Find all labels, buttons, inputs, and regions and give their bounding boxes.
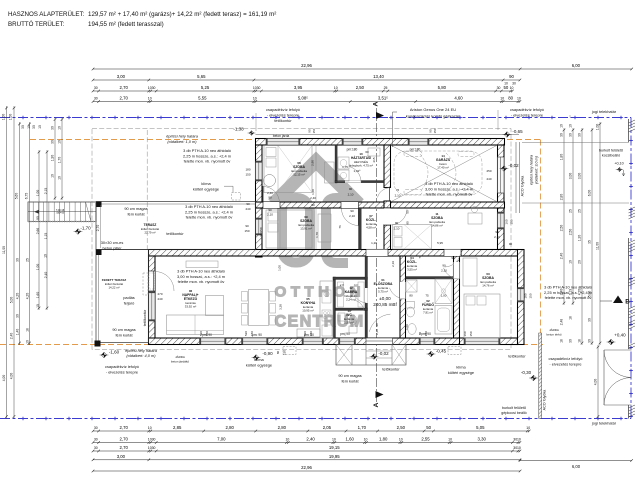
svg-text:80: 80 — [508, 96, 513, 101]
svg-text:-0,45: -0,45 — [436, 349, 447, 354]
svg-text:építési hely határa: építési hely határa — [166, 134, 199, 139]
svg-text:-0,02: -0,02 — [508, 163, 519, 168]
svg-text:10: 10 — [500, 97, 504, 101]
svg-text:4,20: 4,20 — [26, 293, 30, 300]
svg-text:2,80: 2,80 — [560, 194, 564, 201]
svg-text:90 cm magas: 90 cm magas — [124, 206, 147, 211]
svg-text:1,90: 1,90 — [51, 155, 55, 162]
svg-text:76: 76 — [396, 188, 400, 192]
svg-text:25: 25 — [578, 209, 582, 213]
svg-text:30: 30 — [94, 446, 98, 450]
svg-text:1,92⁵: 1,92⁵ — [353, 169, 361, 173]
svg-text:1,00: 1,00 — [278, 265, 282, 271]
svg-text:80: 80 — [409, 294, 413, 298]
svg-text:2,24 m²: 2,24 m² — [346, 298, 356, 302]
svg-text:4,00: 4,00 — [10, 373, 14, 380]
svg-text:2,10: 2,10 — [394, 226, 400, 230]
svg-text:5,80: 5,80 — [438, 85, 447, 90]
svg-text:30: 30 — [497, 86, 501, 90]
svg-text:240,85 mBf: 240,85 mBf — [373, 302, 397, 307]
svg-text:4,00: 4,00 — [594, 379, 598, 386]
svg-text:150: 150 — [250, 331, 254, 336]
svg-text:90: 90 — [509, 242, 513, 246]
svg-text:2,15: 2,15 — [44, 188, 48, 195]
svg-text:2,50: 2,50 — [356, 85, 365, 90]
svg-text:csapadékvíz lefolyó: csapadékvíz lefolyó — [105, 364, 139, 369]
svg-text:10: 10 — [26, 340, 30, 344]
svg-text:180: 180 — [524, 293, 528, 298]
svg-text:-1,60: -1,60 — [109, 350, 120, 355]
svg-text:30: 30 — [16, 258, 20, 262]
svg-text:2,10: 2,10 — [395, 194, 401, 198]
svg-text:14,86 m²: 14,86 m² — [431, 224, 442, 228]
svg-text:20: 20 — [578, 260, 582, 264]
svg-text:10: 10 — [332, 438, 336, 442]
svg-text:30×30 cm-es: 30×30 cm-es — [101, 240, 124, 245]
svg-text:1,60: 1,60 — [36, 292, 40, 299]
svg-text:fém korlát: fém korlát — [127, 211, 145, 216]
svg-text:180: 180 — [245, 168, 250, 172]
svg-text:B: B — [625, 299, 630, 306]
svg-text:90: 90 — [349, 187, 353, 191]
svg-text:2,40: 2,40 — [306, 437, 315, 442]
svg-text:10: 10 — [44, 254, 48, 258]
svg-text:2,90: 2,90 — [311, 160, 315, 166]
svg-text:tetőkontúr: tetőkontúr — [382, 367, 400, 372]
svg-text:(oldalkert: 1,0 m): (oldalkert: 1,0 m) — [167, 139, 197, 144]
svg-text:ACO folyóka: ACO folyóka — [543, 389, 547, 411]
svg-text:1,60: 1,60 — [346, 437, 355, 442]
svg-text:520: 520 — [244, 331, 248, 336]
svg-text:50: 50 — [504, 85, 509, 90]
svg-text:19,95: 19,95 — [329, 454, 340, 459]
svg-text:150: 150 — [433, 128, 437, 133]
svg-text:14,22 m²: 14,22 m² — [108, 286, 119, 290]
svg-text:BRUTTÓ TERÜLET:: BRUTTÓ TERÜLET: — [8, 21, 65, 28]
svg-text:10: 10 — [526, 426, 530, 430]
svg-text:33,92 m²: 33,92 m² — [185, 304, 196, 308]
svg-text:150: 150 — [312, 128, 316, 133]
svg-text:2,10: 2,10 — [348, 193, 354, 197]
svg-text:30: 30 — [560, 133, 564, 137]
svg-text:+0,40: +0,40 — [614, 333, 626, 338]
svg-text:14,76 m²: 14,76 m² — [482, 284, 493, 288]
svg-text:160: 160 — [505, 219, 509, 224]
svg-text:80: 80 — [418, 332, 422, 336]
svg-text:10: 10 — [569, 124, 573, 128]
svg-text:90: 90 — [429, 129, 433, 133]
svg-text:tetőkontúr: tetőkontúr — [508, 354, 526, 359]
svg-text:beton pillér: beton pillér — [102, 245, 122, 250]
svg-text:- elvezetés terepre: - elvezetés terepre — [106, 369, 138, 374]
svg-text:JÁRDA: JÁRDA — [549, 328, 559, 332]
svg-text:90: 90 — [246, 202, 250, 206]
svg-text:18: 18 — [569, 316, 573, 320]
svg-text:90: 90 — [406, 221, 410, 225]
svg-text:3,55 m²: 3,55 m² — [407, 268, 417, 272]
svg-text:6,00: 6,00 — [588, 190, 592, 197]
svg-text:160: 160 — [463, 331, 467, 336]
svg-text:3,00 m hosszú, a.s.: +2,4 m: 3,00 m hosszú, a.s.: +2,4 m — [425, 186, 473, 191]
svg-text:150: 150 — [424, 331, 428, 336]
svg-text:1,00: 1,00 — [2, 114, 6, 121]
svg-text:2,80: 2,80 — [278, 425, 287, 430]
svg-text:(oldalkert: 3,0 m): (oldalkert: 3,0 m) — [535, 155, 539, 183]
svg-text:2,40: 2,40 — [10, 333, 14, 340]
svg-text:60: 60 — [365, 150, 369, 154]
svg-text:2,50: 2,50 — [560, 225, 564, 232]
svg-text:3,51⁵: 3,51⁵ — [378, 96, 388, 101]
svg-text:felette mon. vb. nyomott öv: felette mon. vb. nyomott öv — [184, 159, 231, 164]
svg-text:30: 30 — [21, 125, 25, 129]
svg-text:194,55 m² (fedett terasszal): 194,55 m² (fedett terasszal) — [88, 21, 164, 28]
svg-text:90|150: 90|150 — [259, 227, 263, 236]
svg-text:kondenzációs kombi gázkazán: kondenzációs kombi gázkazán — [406, 113, 460, 118]
svg-text:felette mon. vb. nyomott öv: felette mon. vb. nyomott öv — [186, 215, 233, 220]
svg-text:30: 30 — [94, 86, 98, 90]
svg-text:76: 76 — [418, 255, 422, 259]
svg-text:10: 10 — [27, 125, 31, 129]
svg-text:1,20: 1,20 — [371, 241, 377, 245]
svg-text:hidegburk. 4,75 m²: hidegburk. 4,75 m² — [349, 164, 373, 168]
svg-text:10: 10 — [36, 304, 40, 308]
svg-text:3,28: 3,28 — [279, 304, 283, 310]
svg-text:19,15: 19,15 — [329, 445, 340, 450]
svg-text:beton térkő: beton térkő — [546, 332, 561, 336]
svg-text:150: 150 — [529, 293, 533, 298]
svg-text:22,96: 22,96 — [301, 63, 312, 68]
svg-text:5,95: 5,95 — [437, 241, 443, 245]
svg-text:4,20: 4,20 — [16, 293, 20, 300]
svg-text:klíma: klíma — [456, 365, 466, 370]
svg-text:2,50: 2,50 — [397, 425, 406, 430]
svg-text:3,00: 3,00 — [578, 173, 582, 180]
svg-text:90: 90 — [245, 224, 249, 228]
svg-text:-0,30: -0,30 — [521, 370, 532, 375]
svg-text:2,70: 2,70 — [120, 425, 129, 430]
svg-text:padlás: padlás — [123, 295, 135, 300]
svg-text:47⁵: 47⁵ — [340, 284, 345, 288]
svg-text:1,70: 1,70 — [315, 232, 319, 238]
svg-text:felette mon. vb. nyomott öv: felette mon. vb. nyomott öv — [178, 279, 225, 284]
svg-text:30: 30 — [94, 426, 98, 430]
svg-text:2,10: 2,10 — [441, 269, 447, 273]
svg-text:240: 240 — [245, 207, 250, 211]
svg-text:10: 10 — [253, 97, 257, 101]
svg-text:35: 35 — [588, 240, 592, 244]
svg-text:kocsibeálló: kocsibeálló — [602, 154, 620, 158]
svg-text:30: 30 — [32, 125, 36, 129]
svg-text:30: 30 — [16, 314, 20, 318]
svg-text:1,80: 1,80 — [560, 154, 564, 161]
svg-text:240: 240 — [157, 297, 162, 301]
svg-text:beton járda: beton járda — [273, 134, 290, 138]
svg-text:5,65: 5,65 — [197, 74, 206, 79]
svg-text:4,58 m²: 4,58 m² — [366, 226, 376, 230]
svg-text:270: 270 — [157, 292, 162, 296]
svg-text:2,70: 2,70 — [96, 225, 100, 232]
svg-text:-1,38: -1,38 — [233, 127, 244, 132]
svg-text:2,66: 2,66 — [36, 228, 40, 235]
svg-text:2,25 m hosszú, a.s.: +2,4 m: 2,25 m hosszú, a.s.: +2,4 m — [185, 209, 233, 214]
svg-text:30: 30 — [152, 438, 156, 442]
svg-text:tetőkontúr: tetőkontúr — [274, 118, 292, 123]
svg-text:3,00: 3,00 — [117, 454, 126, 459]
svg-text:90: 90 — [451, 256, 455, 260]
svg-text:-0,02: -0,02 — [378, 351, 389, 356]
svg-text:ACO folyóka: ACO folyóka — [521, 175, 525, 197]
svg-text:92⁰: 92⁰ — [354, 284, 359, 288]
svg-text:10: 10 — [364, 438, 368, 442]
svg-text:6,75: 6,75 — [25, 193, 29, 200]
svg-text:csapadékvíz lefolyó: csapadékvíz lefolyó — [510, 107, 544, 112]
svg-text:30: 30 — [578, 133, 582, 137]
svg-text:klíma: klíma — [201, 181, 211, 186]
svg-text:18: 18 — [578, 339, 582, 343]
svg-text:2,05: 2,05 — [323, 425, 332, 430]
svg-text:2,10: 2,10 — [349, 214, 355, 218]
svg-text:10: 10 — [517, 97, 521, 101]
svg-text:75: 75 — [425, 294, 429, 298]
svg-text:18: 18 — [26, 328, 30, 332]
svg-text:2,40: 2,40 — [267, 191, 273, 195]
svg-text:520: 520 — [303, 331, 307, 336]
svg-text:10: 10 — [148, 97, 152, 101]
svg-text:50: 50 — [426, 425, 431, 430]
svg-text:- elvezetés terepre: - elvezetés terepre — [511, 112, 543, 117]
svg-text:-0,90: -0,90 — [262, 351, 273, 356]
svg-text:76: 76 — [338, 225, 342, 229]
svg-text:feljaró: feljaró — [124, 300, 135, 305]
svg-text:10,95 m²: 10,95 m² — [302, 309, 313, 313]
svg-text:30: 30 — [94, 438, 98, 442]
svg-text:fém korlát: fém korlát — [115, 332, 133, 337]
svg-text:3,30: 3,30 — [478, 437, 487, 442]
svg-text:30: 30 — [569, 133, 573, 137]
svg-text:3 db PTH A-10 neo áthidaló: 3 db PTH A-10 neo áthidaló — [177, 269, 225, 274]
svg-text:1,50 m²: 1,50 m² — [344, 321, 354, 325]
svg-text:tetőkontúr: tetőkontúr — [166, 231, 184, 236]
svg-text:1,40: 1,40 — [16, 329, 20, 336]
svg-text:1,70: 1,70 — [358, 425, 367, 430]
svg-text:50: 50 — [406, 210, 410, 214]
svg-text:csapadékvíz lefolyó: csapadékvíz lefolyó — [266, 107, 300, 112]
svg-text:215: 215 — [372, 157, 376, 162]
svg-text:pm:180: pm:180 — [410, 148, 421, 152]
svg-text:1,00: 1,00 — [9, 114, 13, 121]
svg-text:2,19: 2,19 — [391, 261, 395, 267]
svg-text:építési hely határa: építési hely határa — [530, 155, 534, 185]
svg-text:11,00: 11,00 — [596, 242, 600, 250]
svg-text:520: 520 — [199, 331, 203, 336]
svg-text:4,00: 4,00 — [2, 375, 6, 382]
svg-text:HASZNOS ALAPTERÜLET:: HASZNOS ALAPTERÜLET: — [8, 11, 85, 18]
svg-text:kültéri egysége: kültéri egysége — [448, 370, 474, 375]
svg-text:30: 30 — [588, 318, 592, 322]
svg-text:90: 90 — [395, 221, 399, 225]
svg-text:25: 25 — [384, 86, 388, 90]
svg-text:pm| 90: pm| 90 — [340, 332, 350, 336]
svg-text:5,05: 5,05 — [476, 425, 485, 430]
svg-text:1,00: 1,00 — [36, 264, 40, 271]
svg-text:beton járdákő: beton járdákő — [171, 359, 190, 363]
svg-text:3,00: 3,00 — [117, 74, 126, 79]
svg-text:30: 30 — [569, 339, 573, 343]
svg-text:1,00: 1,00 — [441, 294, 447, 298]
svg-text:13,91 m²: 13,91 m² — [300, 227, 311, 231]
svg-text:90 cm magas: 90 cm magas — [338, 373, 361, 378]
svg-text:30: 30 — [257, 86, 261, 90]
svg-text:10: 10 — [58, 126, 62, 130]
svg-text:2,80: 2,80 — [226, 425, 235, 430]
svg-text:1,00: 1,00 — [405, 324, 409, 330]
svg-text:25: 25 — [26, 258, 30, 262]
svg-text:tetőkontúr: tetőkontúr — [143, 309, 147, 326]
svg-text:2,50: 2,50 — [569, 229, 573, 236]
svg-text:jogi telekhatár: jogi telekhatár — [591, 421, 617, 426]
svg-text:150: 150 — [469, 331, 473, 336]
svg-text:10: 10 — [448, 438, 452, 442]
svg-text:30: 30 — [94, 97, 98, 101]
svg-text:90: 90 — [268, 208, 272, 212]
svg-text:129,57 m² + 17,40 m² (garázs): 129,57 m² + 17,40 m² (garázs)+ 14,22 m² … — [88, 11, 276, 18]
svg-text:gépkocsi beálló: gépkocsi beálló — [501, 411, 526, 415]
svg-text:burkolt felületű: burkolt felületű — [599, 149, 623, 153]
svg-text:2,40: 2,40 — [560, 253, 564, 260]
svg-text:1,15: 1,15 — [44, 233, 48, 240]
svg-text:3 db PTH A-10 neo áthidaló: 3 db PTH A-10 neo áthidaló — [183, 148, 231, 153]
svg-text:10: 10 — [58, 176, 62, 180]
svg-text:30: 30 — [588, 339, 592, 343]
svg-text:2,25 m hosszú, a.s.: +2,4 m: 2,25 m hosszú, a.s.: +2,4 m — [544, 290, 592, 295]
svg-text:2,85: 2,85 — [173, 425, 182, 430]
svg-text:11,00: 11,00 — [2, 246, 6, 254]
svg-text:30: 30 — [51, 126, 55, 130]
svg-text:2,10: 2,10 — [267, 213, 273, 217]
svg-text:-1,70: -1,70 — [80, 226, 91, 231]
svg-text:90: 90 — [311, 203, 315, 207]
svg-text:90: 90 — [268, 196, 272, 200]
svg-text:22,79 m²: 22,79 m² — [144, 231, 155, 235]
svg-text:2,40: 2,40 — [44, 272, 48, 279]
svg-text:1,75: 1,75 — [342, 165, 348, 169]
svg-text:5,75 m²: 5,75 m² — [378, 290, 388, 294]
svg-text:12,15 m²: 12,15 m² — [293, 173, 304, 177]
svg-text:±0,00: ±0,00 — [379, 296, 391, 301]
svg-text:10: 10 — [58, 140, 62, 144]
svg-text:7,00: 7,00 — [217, 437, 226, 442]
svg-text:-0,65: -0,65 — [512, 129, 523, 134]
svg-text:burkolt felületű: burkolt felületű — [502, 406, 526, 410]
svg-text:A: A — [373, 402, 380, 407]
svg-text:JÁRDA: JÁRDA — [175, 355, 185, 359]
svg-text:10: 10 — [38, 125, 42, 129]
svg-text:5,55: 5,55 — [198, 96, 207, 101]
svg-text:1,70: 1,70 — [58, 157, 62, 164]
svg-text:10: 10 — [517, 438, 521, 442]
svg-text:150: 150 — [244, 229, 249, 233]
svg-text:- elvezetés terepre: - elvezetés terepre — [267, 112, 299, 117]
svg-text:30: 30 — [51, 140, 55, 144]
svg-text:25: 25 — [569, 209, 573, 213]
svg-text:90 cm magas: 90 cm magas — [112, 327, 135, 332]
svg-text:2,10: 2,10 — [494, 235, 500, 239]
svg-text:2,70: 2,70 — [120, 96, 129, 101]
svg-text:7,91 m²: 7,91 m² — [423, 311, 433, 315]
svg-text:felette mon. vb. nyomott öv: felette mon. vb. nyomott öv — [426, 192, 473, 197]
svg-text:10: 10 — [334, 86, 338, 90]
svg-text:90: 90 — [375, 323, 379, 327]
svg-text:fém korlát: fém korlát — [341, 378, 359, 383]
svg-text:2,40: 2,40 — [310, 196, 316, 200]
svg-text:30: 30 — [512, 82, 516, 86]
svg-text:3 db PTH A-10 neo áthidaló: 3 db PTH A-10 neo áthidaló — [425, 181, 473, 186]
svg-text:150: 150 — [205, 331, 209, 336]
svg-text:30: 30 — [152, 86, 156, 90]
svg-text:90: 90 — [36, 216, 40, 220]
svg-text:90: 90 — [495, 230, 499, 234]
svg-text:1,00: 1,00 — [311, 189, 315, 195]
svg-text:1,30: 1,30 — [578, 235, 582, 242]
svg-text:10: 10 — [569, 260, 573, 264]
svg-text:10: 10 — [560, 124, 564, 128]
svg-text:30: 30 — [152, 446, 156, 450]
svg-text:13,40: 13,40 — [373, 74, 384, 79]
svg-text:2,25 m hosszú, a.s.: +2,4 m: 2,25 m hosszú, a.s.: +2,4 m — [183, 153, 231, 158]
svg-text:4,60: 4,60 — [454, 96, 463, 101]
svg-text:80: 80 — [276, 351, 280, 355]
svg-text:17,40 m²: 17,40 m² — [437, 166, 448, 170]
svg-text:22,96: 22,96 — [301, 465, 312, 470]
svg-text:felette mon. vb. nyomott öv: felette mon. vb. nyomott öv — [545, 295, 592, 300]
svg-text:5,08⁵: 5,08⁵ — [298, 96, 308, 101]
svg-text:150: 150 — [245, 172, 250, 176]
svg-text:150: 150 — [309, 331, 313, 336]
svg-text:3 db PTH A-10 neo áthidaló: 3 db PTH A-10 neo áthidaló — [544, 285, 592, 290]
svg-text:6,00: 6,00 — [572, 63, 581, 68]
svg-text:10: 10 — [510, 86, 514, 90]
svg-text:5,25: 5,25 — [201, 85, 210, 90]
svg-text:150: 150 — [283, 350, 287, 355]
svg-text:1,00: 1,00 — [36, 190, 40, 197]
svg-text:2,55: 2,55 — [421, 437, 430, 442]
svg-text:10: 10 — [285, 438, 289, 442]
svg-text:A: A — [373, 101, 380, 106]
svg-text:10: 10 — [517, 446, 521, 450]
svg-text:7,00×18: 7,00×18 — [56, 209, 65, 212]
svg-text:90: 90 — [442, 264, 446, 268]
svg-text:3,00: 3,00 — [569, 173, 573, 180]
svg-text:- elvezetés terepre: - elvezetés terepre — [549, 361, 581, 366]
svg-text:10: 10 — [148, 426, 152, 430]
svg-text:csapadékvíz lefolyó: csapadékvíz lefolyó — [549, 356, 583, 361]
svg-text:(oldalkert: 4,0 m): (oldalkert: 4,0 m) — [126, 353, 156, 358]
svg-text:kültéri egysége: kültéri egysége — [246, 362, 272, 367]
svg-text:90: 90 — [509, 74, 514, 79]
svg-text:+0,10: +0,10 — [614, 162, 623, 166]
svg-text:3,95: 3,95 — [294, 85, 303, 90]
svg-text:2,70: 2,70 — [120, 437, 129, 442]
svg-text:10: 10 — [51, 174, 55, 178]
svg-text:10: 10 — [399, 438, 403, 442]
svg-text:Ariston Genus One 24 EU: Ariston Genus One 24 EU — [410, 107, 456, 112]
svg-text:90: 90 — [350, 209, 354, 213]
svg-text:kültéri egysége: kültéri egysége — [193, 186, 219, 191]
svg-text:2,70: 2,70 — [120, 85, 129, 90]
svg-text:3 db PTH A-10 neo áthidaló: 3 db PTH A-10 neo áthidaló — [185, 204, 233, 209]
svg-text:18: 18 — [560, 339, 564, 343]
svg-text:2,70: 2,70 — [120, 445, 129, 450]
